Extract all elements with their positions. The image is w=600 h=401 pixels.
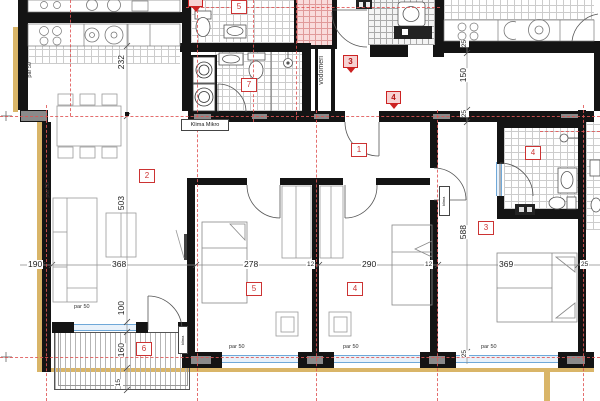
par50-label-west-lower: par 50 [45,182,51,198]
axis-v-7 [437,110,438,401]
shield-marker-partial [188,0,203,7]
floor-plan: 232 503 100 160 15 190 368 278 290 369 1… [0,0,600,401]
sofa-icon [53,198,136,302]
dim-503: 503 [117,196,126,210]
dim-290: 290 [361,260,377,269]
room-label-6: 6 [136,342,152,356]
dim-25-right: 25 [580,260,589,269]
room-label-7: 7 [241,78,257,92]
dim-15: 15 [114,379,123,386]
par50-label-west-upper: par 50 [27,62,33,78]
axis-v-8 [583,105,584,401]
axis-h-bathright [540,131,600,132]
wall-kitchen-divider [18,12,182,23]
dim-368: 368 [111,260,127,269]
wall-mini-label-balcony: klima [178,326,188,354]
klima-mikro-label: Klima Mikro [181,119,229,131]
wall-room4-top-b [376,178,430,185]
dim-150: 150 [459,68,468,82]
dim-25-b: 25 [460,110,469,117]
bathroom-unit-tiles [215,52,302,111]
balcony-railing [58,332,188,386]
shield-marker-4: 4 [386,91,401,104]
wall-bath-east [302,52,311,111]
dim-278: 278 [243,260,259,269]
kitchen-left-floor-tiles [28,46,180,64]
dim-190: 190 [27,260,43,269]
axis-h-top [186,7,440,8]
dim-232: 232 [117,55,126,69]
room-label-5: 5 [246,282,262,296]
axis-cross-marker-icon [1,111,12,362]
dining-table-icon [57,94,121,158]
vodomeri-label: vodomeri [319,56,325,85]
wall-bath-top [180,43,311,52]
tv-icon [176,230,187,260]
par50-label-balcony: par 50 [74,304,90,310]
wall-kitchen-east [182,0,191,111]
axis-v-4 [253,0,254,122]
kitchen-right-backsplash-tiles [444,0,594,20]
dim-12-b: 12 [424,260,433,269]
dim-160: 160 [117,343,126,357]
wall-room5-top-a [195,178,247,185]
neighbor-bath-sliver-tiles [586,122,600,230]
axis-h-south [0,357,600,358]
installation-shaft [191,55,217,113]
wall-room4-top-a [319,178,343,185]
shield-marker-3: 3 [343,55,358,68]
axis-v-1 [46,105,47,401]
wall-living-south-b [136,322,148,333]
par50-label-room3: par 50 [481,344,497,350]
room-label-1: 1 [351,143,367,157]
wall-room5-top-b [280,178,312,185]
room-label-upper-5: 5 [231,0,247,14]
wall-bathR-top [497,118,585,128]
dim-12-a: 12 [306,260,315,269]
room-label-3: 3 [478,221,494,235]
insulation-bottom-right-return [544,368,550,401]
wall-niche-top [311,45,337,49]
wall-right-upper [594,41,600,111]
bed-icon [202,222,577,322]
bathroom-right-tiles [504,128,578,209]
dim-25-c: 25 [460,350,469,357]
wall-mini-label-right: klima [439,186,450,216]
axis-v-3 [197,0,198,401]
axis-v-2 [70,0,71,116]
window-balcony [72,324,136,331]
wall-right-main [578,110,586,368]
axis-v-5 [296,0,297,120]
room-label-2: 2 [139,169,155,183]
dim-100: 100 [117,301,126,315]
window-bath-right [496,162,502,196]
par50-label-room5: par 50 [229,344,245,350]
axis-h-main [0,116,600,117]
wall-living-south-a [52,322,74,333]
room-label-4: 4 [347,282,363,296]
par50-label-room4: par 50 [343,344,359,350]
wall-bathR-left-a [497,118,504,164]
axis-v-6 [316,110,317,401]
wall-upper-right-vert [435,0,444,57]
wall-niche-right [331,48,335,112]
dim-369: 369 [498,260,514,269]
room-label-bath-4: 4 [525,146,541,160]
dim-25-a: 25 [460,40,469,47]
dim-588: 588 [459,225,468,239]
wall-upper-entry-a [370,45,408,57]
wall-bathR-bottom [497,209,585,219]
